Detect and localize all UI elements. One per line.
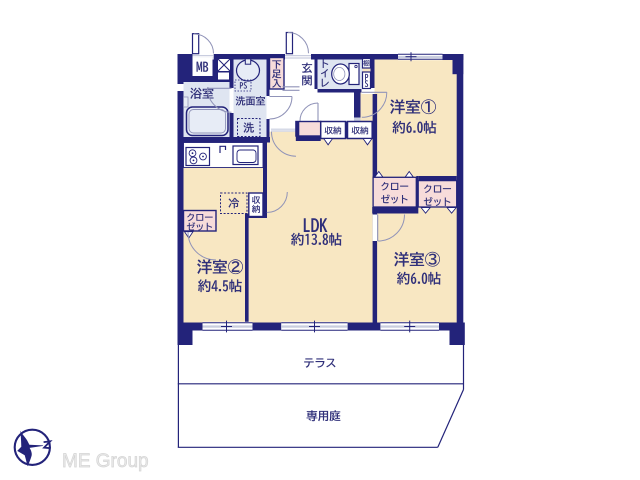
- svg-text:ME Group: ME Group: [62, 451, 149, 472]
